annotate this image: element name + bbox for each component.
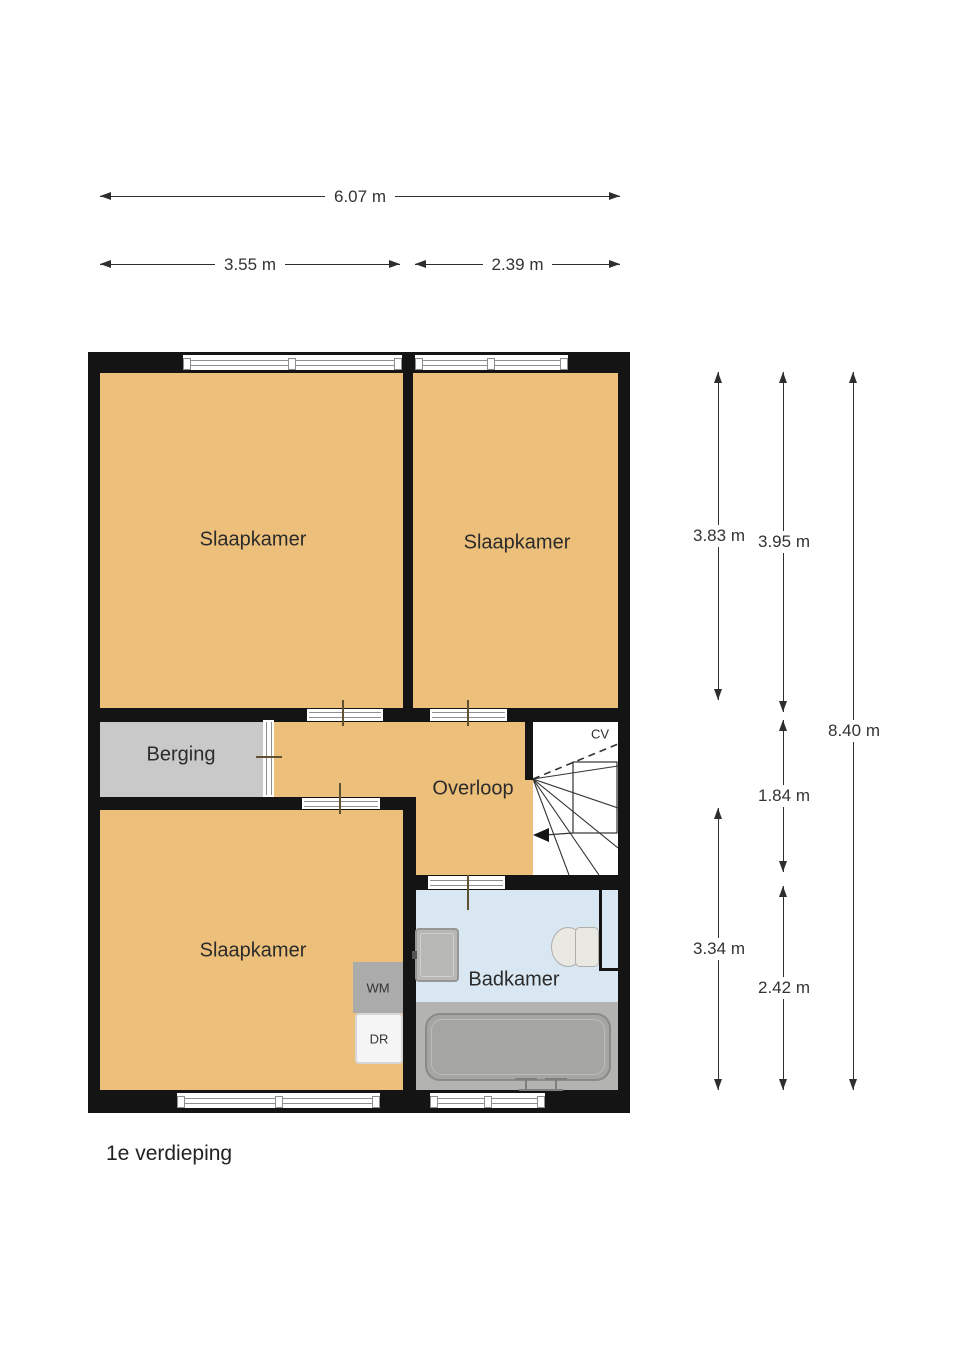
window-top-left <box>183 355 402 370</box>
window-top-right <box>415 355 568 370</box>
dimension-label: 8.40 m <box>819 720 889 742</box>
dryer-label: DR <box>370 1031 389 1046</box>
wall-right <box>618 352 630 1113</box>
door-tick <box>342 700 344 726</box>
door-bedroom-bottom <box>302 798 380 809</box>
dimension-line-left-width: 3.55 m <box>100 264 400 265</box>
room-label-bedroom-top-right: Slaapkamer <box>464 532 571 555</box>
door-tick <box>467 875 469 910</box>
door-tick <box>256 756 282 758</box>
door-tick <box>467 700 469 726</box>
dimension-label: 2.42 m <box>749 977 819 999</box>
boiler-label: CV <box>591 727 609 742</box>
dimension-line-total-height: 8.40 m <box>853 372 854 1090</box>
room-label-bathroom: Badkamer <box>468 969 559 992</box>
floor-label: 1e verdieping <box>106 1142 232 1166</box>
dimension-line-right-width: 2.39 m <box>415 264 620 265</box>
wall-center-bedrooms <box>403 373 413 722</box>
dimension-label: 6.07 m <box>325 186 395 208</box>
dimension-label: 1.84 m <box>749 785 819 807</box>
dryer: DR <box>355 1013 403 1064</box>
stairs-icon <box>533 722 618 875</box>
dimension-line-bottom-bedroom-height: 3.34 m <box>718 808 719 1090</box>
dimension-label: 3.34 m <box>684 938 754 960</box>
bath-faucet-icon <box>515 1078 571 1093</box>
door-storage <box>263 720 274 797</box>
floorplan: WM DR Slaapkamer Slaapkamer Berging Over… <box>88 352 630 1113</box>
washing-machine-label: WM <box>366 980 389 995</box>
floorplan-canvas: 6.07 m 3.55 m 2.39 m 3.83 m 3.34 m 3.95 … <box>0 0 960 1358</box>
bathtub-icon <box>425 1013 611 1081</box>
dimension-label: 2.39 m <box>483 254 553 276</box>
dimension-label: 3.83 m <box>684 525 754 547</box>
room-label-bedroom-bottom: Slaapkamer <box>200 940 307 963</box>
dimension-label: 3.55 m <box>215 254 285 276</box>
wall-toilet-niche-vertical <box>599 890 602 971</box>
wall-left <box>88 352 100 1113</box>
wall-toilet-niche-horizontal <box>599 968 618 971</box>
window-bottom-right <box>430 1093 545 1108</box>
dimension-line-landing-height: 1.84 m <box>783 720 784 872</box>
washing-machine: WM <box>353 962 403 1013</box>
dimension-label: 3.95 m <box>749 531 819 553</box>
room-label-landing: Overloop <box>432 778 513 801</box>
dimension-line-bedroom-right-height: 3.95 m <box>783 372 784 712</box>
door-bedroom-top-left <box>307 709 383 721</box>
washbasin-icon <box>415 928 459 982</box>
dimension-line-bedroom-left-height: 3.83 m <box>718 372 719 700</box>
window-bottom-left <box>177 1093 380 1108</box>
toilet-icon <box>551 927 599 968</box>
door-tick <box>339 783 341 814</box>
dimension-line-total-width: 6.07 m <box>100 196 620 197</box>
room-label-storage: Berging <box>147 744 216 767</box>
wall-stairs-left <box>525 718 533 780</box>
dimension-line-bathroom-height: 2.42 m <box>783 886 784 1090</box>
room-label-bedroom-top-left: Slaapkamer <box>200 529 307 552</box>
